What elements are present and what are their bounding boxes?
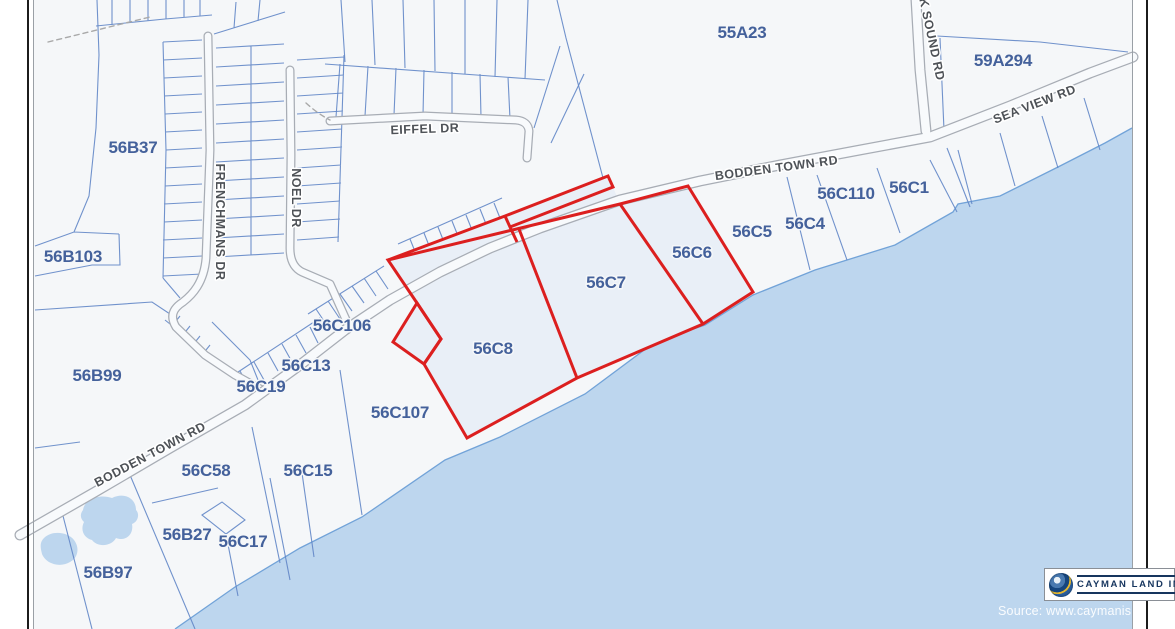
parcel-label-56C7: 56C7 <box>586 273 626 292</box>
inner-border-left <box>33 0 34 629</box>
parcel-label-56C4: 56C4 <box>785 214 826 233</box>
parcel-label-56C13: 56C13 <box>281 356 330 375</box>
parcel-label-56B97: 56B97 <box>83 563 132 582</box>
parcel-label-56C110: 56C110 <box>817 184 874 203</box>
page-border-right <box>1146 0 1148 629</box>
parcel-label-56C58: 56C58 <box>181 461 230 480</box>
inner-border-right <box>1132 0 1133 629</box>
parcel-label-56B103: 56B103 <box>44 247 102 266</box>
parcel-label-56C5: 56C5 <box>732 222 772 241</box>
parcel-label-55A23: 55A23 <box>717 23 766 42</box>
road-label-frenchmans-dr: FRENCHMANS DR <box>213 164 227 281</box>
parcel-label-56C6: 56C6 <box>672 243 712 262</box>
cayman-land-info-logo: CAYMAN LAND INFO <box>1044 568 1175 601</box>
parcel-label-56C8: 56C8 <box>473 339 513 358</box>
globe-icon <box>1049 573 1073 597</box>
parcel-map: 55A23 59A294 56B37 56B103 56B99 56B97 56… <box>0 0 1175 629</box>
parcel-label-56C107: 56C107 <box>371 403 429 422</box>
parcel-label-59A294: 59A294 <box>974 51 1033 70</box>
road-label-eiffel-dr: EIFFEL DR <box>390 121 459 137</box>
page-border-left <box>27 0 29 629</box>
parcel-label-56C1: 56C1 <box>889 178 929 197</box>
parcel-label-56C17: 56C17 <box>218 532 267 551</box>
parcel-label-56C106: 56C106 <box>313 316 371 335</box>
parcel-label-56B27: 56B27 <box>162 525 211 544</box>
parcel-label-56B37: 56B37 <box>108 138 157 157</box>
parcel-label-56C15: 56C15 <box>283 461 332 480</box>
parcel-label-56C19: 56C19 <box>236 377 285 396</box>
road-label-noel-dr: NOEL DR <box>289 168 303 228</box>
map-canvas: 55A23 59A294 56B37 56B103 56B99 56B97 56… <box>0 0 1175 629</box>
logo-wordmark: CAYMAN LAND INFO <box>1077 575 1175 594</box>
parcel-label-56B99: 56B99 <box>72 366 121 385</box>
